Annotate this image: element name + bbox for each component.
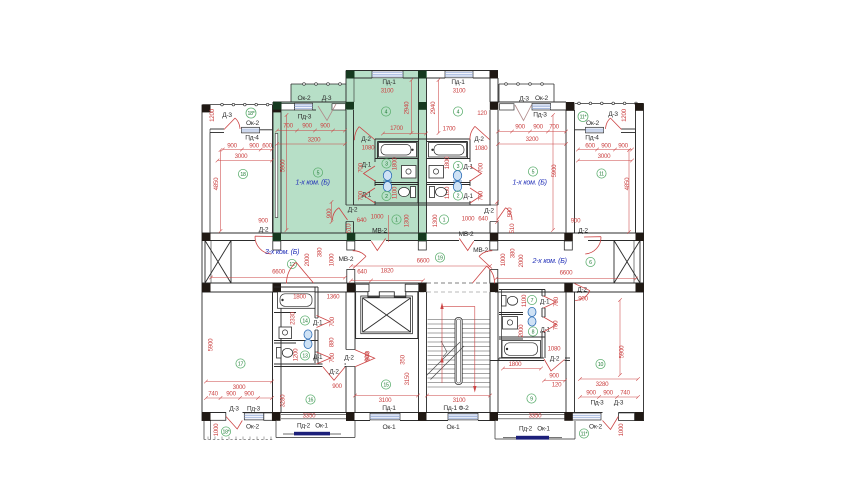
svg-text:900: 900 (302, 123, 312, 130)
svg-text:Пд-2: Пд-2 (297, 423, 311, 430)
svg-text:3000: 3000 (235, 153, 249, 160)
svg-text:11: 11 (599, 172, 604, 178)
svg-text:700: 700 (283, 123, 293, 130)
svg-text:5900: 5900 (208, 338, 215, 352)
svg-text:1: 1 (443, 218, 446, 224)
svg-text:700: 700 (553, 320, 560, 330)
svg-text:Д-2: Д-2 (348, 207, 358, 214)
svg-text:1700: 1700 (443, 126, 457, 133)
svg-text:120: 120 (477, 110, 487, 117)
svg-text:Пд-1: Пд-1 (382, 79, 396, 86)
svg-text:120: 120 (552, 382, 562, 389)
svg-text:Д-3: Д-3 (519, 96, 529, 103)
svg-text:Пд-4: Пд-4 (585, 135, 599, 142)
svg-text:2: 2 (457, 194, 460, 200)
svg-text:Пд-1: Пд-1 (451, 79, 465, 86)
svg-text:9: 9 (530, 397, 533, 403)
svg-text:Ок-1: Ок-1 (315, 423, 328, 430)
svg-text:1820: 1820 (381, 268, 395, 275)
svg-text:5900: 5900 (551, 164, 558, 178)
svg-text:Д-1: Д-1 (313, 354, 323, 361)
svg-text:Ок-1: Ок-1 (537, 426, 550, 433)
svg-text:700: 700 (329, 352, 336, 362)
svg-text:1300: 1300 (432, 214, 439, 228)
svg-text:900: 900 (326, 208, 333, 218)
svg-text:Ок-2: Ок-2 (246, 424, 259, 431)
svg-text:Д-2: Д-2 (484, 208, 494, 215)
svg-text:1000: 1000 (618, 423, 625, 437)
svg-text:3200: 3200 (308, 137, 322, 144)
svg-text:11*: 11* (581, 432, 588, 438)
svg-text:510: 510 (509, 223, 516, 233)
svg-text:Пд-3: Пд-3 (298, 114, 312, 121)
svg-text:1360: 1360 (327, 294, 341, 301)
svg-text:4: 4 (457, 110, 460, 116)
svg-text:1: 1 (395, 218, 398, 224)
svg-text:1-х ком. (Б): 1-х ком. (Б) (513, 179, 547, 187)
svg-text:МВ-2: МВ-2 (459, 231, 474, 238)
svg-text:700: 700 (549, 124, 559, 131)
svg-text:900: 900 (249, 143, 259, 150)
svg-text:700: 700 (329, 316, 336, 326)
svg-text:900: 900 (578, 296, 588, 303)
svg-text:640: 640 (478, 216, 488, 223)
svg-text:600: 600 (262, 143, 272, 150)
svg-text:1080: 1080 (548, 346, 562, 353)
svg-text:1100: 1100 (392, 186, 399, 199)
svg-text:Д-2: Д-2 (578, 228, 588, 235)
svg-text:19: 19 (437, 256, 443, 262)
svg-text:380: 380 (317, 247, 324, 257)
svg-text:Пд-3: Пд-3 (533, 112, 547, 119)
svg-text:900: 900 (533, 124, 543, 131)
svg-text:2-х ком. (Б): 2-х ком. (Б) (532, 257, 567, 265)
svg-text:1200: 1200 (293, 348, 300, 362)
svg-text:1200: 1200 (209, 108, 216, 122)
svg-text:1200: 1200 (621, 108, 628, 122)
svg-text:7: 7 (531, 298, 534, 304)
svg-text:Д-2: Д-2 (344, 355, 354, 362)
svg-text:1000: 1000 (213, 423, 220, 437)
svg-text:1-х ком. (Б): 1-х ком. (Б) (296, 179, 330, 187)
svg-text:880: 880 (329, 337, 336, 347)
svg-text:3150: 3150 (404, 372, 411, 386)
svg-text:МВ-2: МВ-2 (473, 247, 488, 254)
svg-text:6600: 6600 (417, 258, 431, 265)
svg-text:Д-3: Д-3 (229, 406, 239, 413)
svg-text:3000: 3000 (598, 153, 612, 160)
svg-text:1000: 1000 (462, 216, 476, 223)
svg-text:12: 12 (289, 262, 295, 268)
svg-text:1800: 1800 (293, 294, 307, 301)
svg-text:900: 900 (515, 124, 525, 131)
svg-text:640: 640 (357, 269, 367, 276)
svg-text:1800: 1800 (444, 156, 451, 170)
svg-text:900: 900 (364, 351, 371, 361)
svg-text:2000: 2000 (518, 324, 525, 338)
svg-text:Пд-4: Пд-4 (245, 135, 259, 142)
svg-text:900: 900 (618, 143, 628, 150)
svg-text:700: 700 (358, 162, 365, 172)
svg-text:2940: 2940 (430, 101, 437, 115)
svg-text:900: 900 (226, 391, 236, 398)
svg-text:3200: 3200 (526, 136, 540, 143)
svg-text:900: 900 (244, 391, 254, 398)
svg-text:Д-1: Д-1 (464, 193, 474, 200)
svg-text:Д-2: Д-2 (259, 227, 269, 234)
svg-text:2000: 2000 (304, 253, 311, 267)
svg-text:Пд-3: Пд-3 (590, 400, 604, 407)
svg-text:Д-2: Д-2 (361, 136, 371, 143)
svg-text:14: 14 (302, 319, 308, 325)
svg-text:2000: 2000 (518, 254, 525, 268)
svg-text:1080: 1080 (475, 145, 489, 152)
svg-text:3350: 3350 (303, 413, 317, 420)
svg-text:3-х ком. (Б): 3-х ком. (Б) (265, 248, 299, 256)
svg-text:740: 740 (208, 391, 218, 398)
svg-text:Ок-1: Ок-1 (447, 424, 460, 431)
svg-text:600: 600 (585, 143, 595, 150)
svg-text:900: 900 (603, 390, 613, 397)
svg-text:Пд-1 Ф-2: Пд-1 Ф-2 (443, 405, 469, 412)
svg-text:1000: 1000 (500, 253, 507, 267)
svg-text:Д-1: Д-1 (540, 299, 550, 306)
svg-text:МВ-2: МВ-2 (372, 228, 387, 235)
svg-text:3100: 3100 (379, 397, 393, 404)
svg-text:Д-2: Д-2 (329, 369, 339, 376)
svg-text:3: 3 (457, 164, 460, 170)
svg-text:700: 700 (553, 296, 560, 306)
svg-text:3100: 3100 (381, 88, 395, 95)
svg-text:Д-3: Д-3 (322, 95, 332, 102)
svg-text:900: 900 (332, 383, 342, 390)
svg-text:Пд-2: Пд-2 (519, 426, 533, 433)
svg-text:Д-3: Д-3 (222, 112, 232, 119)
svg-text:4850: 4850 (213, 177, 220, 191)
svg-text:Ок-2: Ок-2 (298, 95, 311, 102)
svg-text:Д-3: Д-3 (614, 400, 624, 407)
svg-text:Ок-1: Ок-1 (383, 424, 396, 431)
svg-text:900: 900 (227, 143, 237, 150)
svg-text:900: 900 (549, 373, 559, 380)
svg-text:Д-2: Д-2 (550, 356, 560, 363)
svg-text:18: 18 (240, 172, 246, 178)
svg-text:МВ-2: МВ-2 (339, 256, 354, 263)
svg-text:Ок-2: Ок-2 (589, 424, 602, 431)
svg-text:1100: 1100 (521, 294, 528, 307)
svg-text:13: 13 (302, 354, 308, 360)
svg-text:4850: 4850 (624, 177, 631, 191)
svg-text:16: 16 (308, 398, 314, 404)
svg-text:Ок-2: Ок-2 (535, 95, 548, 102)
svg-text:Пд-1: Пд-1 (382, 405, 396, 412)
svg-text:350: 350 (400, 354, 407, 364)
svg-text:Д-3: Д-3 (608, 111, 618, 118)
svg-text:Д-1: Д-1 (541, 327, 551, 334)
svg-text:2330: 2330 (290, 311, 297, 325)
svg-text:3280: 3280 (280, 394, 287, 408)
svg-text:380: 380 (510, 248, 517, 258)
svg-text:900: 900 (320, 123, 330, 130)
svg-text:900: 900 (601, 143, 611, 150)
svg-text:6600: 6600 (560, 270, 574, 277)
svg-text:3: 3 (385, 162, 388, 168)
svg-text:3350: 3350 (529, 413, 543, 420)
svg-text:1700: 1700 (390, 125, 404, 132)
svg-text:10: 10 (598, 362, 604, 368)
svg-text:740: 740 (620, 390, 630, 397)
svg-text:4: 4 (385, 110, 388, 116)
svg-text:1000: 1000 (329, 253, 336, 267)
svg-text:3100: 3100 (453, 88, 467, 95)
svg-text:3280: 3280 (596, 381, 610, 388)
svg-text:510: 510 (346, 223, 353, 233)
svg-text:Д-2: Д-2 (474, 136, 484, 143)
svg-text:900: 900 (571, 218, 581, 225)
svg-text:18*: 18* (222, 430, 229, 436)
svg-text:Пд-3: Пд-3 (247, 405, 261, 412)
svg-text:1800: 1800 (509, 361, 523, 368)
svg-text:6600: 6600 (272, 269, 286, 276)
svg-text:8: 8 (532, 330, 535, 336)
svg-text:5900: 5900 (619, 345, 626, 359)
svg-text:18*: 18* (247, 111, 254, 117)
svg-text:2: 2 (385, 194, 388, 200)
svg-text:Ок-2: Ок-2 (586, 120, 599, 127)
svg-text:1300: 1300 (404, 214, 411, 228)
svg-text:640: 640 (357, 217, 367, 224)
svg-text:17: 17 (238, 362, 244, 368)
svg-text:900: 900 (586, 390, 596, 397)
svg-text:2940: 2940 (404, 101, 411, 115)
svg-text:1080: 1080 (362, 145, 376, 152)
svg-text:5: 5 (532, 170, 535, 176)
svg-text:900: 900 (258, 218, 268, 225)
svg-text:1800: 1800 (392, 157, 399, 171)
svg-text:6: 6 (589, 260, 592, 266)
svg-text:15: 15 (383, 383, 389, 389)
svg-text:5: 5 (317, 171, 320, 177)
svg-text:3100: 3100 (453, 397, 467, 404)
svg-text:5900: 5900 (280, 159, 287, 173)
svg-text:1000: 1000 (371, 214, 385, 221)
svg-text:Ок-2: Ок-2 (246, 120, 259, 127)
